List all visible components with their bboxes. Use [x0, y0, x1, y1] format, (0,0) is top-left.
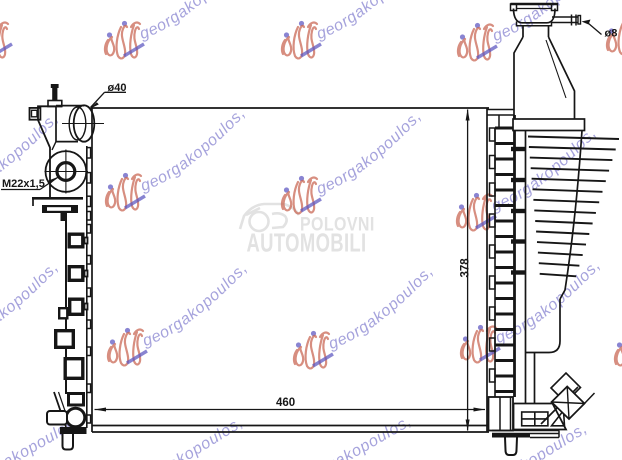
svg-text:460: 460	[276, 397, 295, 409]
svg-text:378: 378	[459, 258, 471, 278]
svg-text:M22x1,5: M22x1,5	[2, 178, 45, 190]
svg-text:ø8: ø8	[605, 28, 618, 40]
svg-text:AUTOMOBILI: AUTOMOBILI	[247, 228, 367, 257]
